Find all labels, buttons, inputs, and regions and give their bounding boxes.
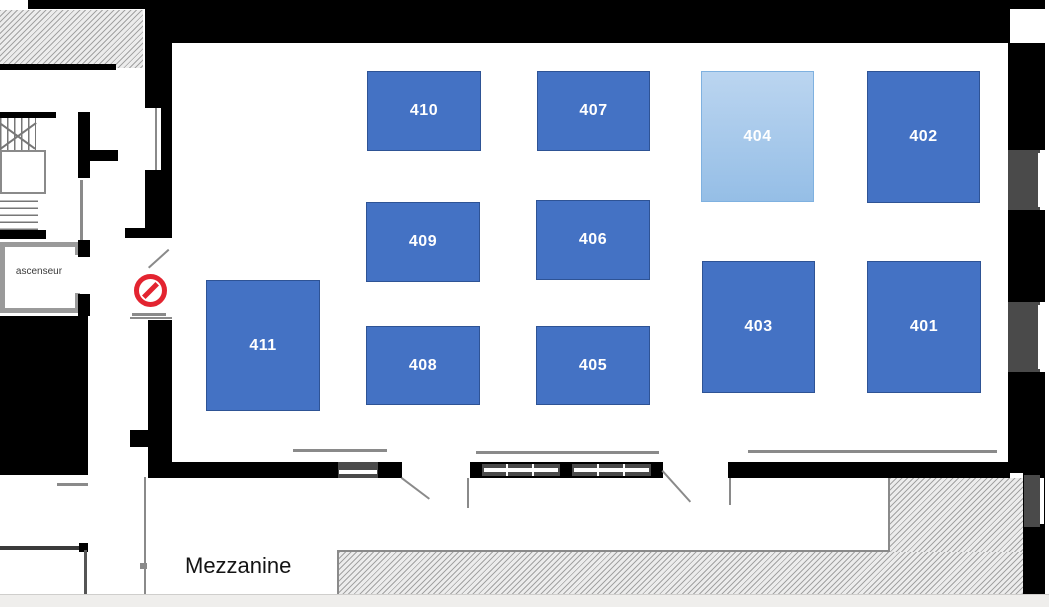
mezzanine-left-guide: [144, 477, 146, 595]
bottom-wall-pier: [378, 462, 402, 478]
elevator-side-wall: [78, 294, 90, 316]
lower-left-wall-line: [0, 546, 86, 550]
room-408[interactable]: 408: [366, 326, 480, 405]
elevator-label: ascenseur: [2, 266, 76, 277]
stair-steps-lower: [0, 196, 38, 230]
room-410[interactable]: 410: [367, 71, 481, 151]
stair-door-jamb: [80, 180, 83, 240]
bottom-wall-left: [148, 462, 338, 478]
bottom-door-swing-1: [401, 477, 430, 500]
mezzanine-void-hatch-upper: [888, 478, 1023, 552]
bottom-window-0-glass: [339, 470, 377, 474]
left-wall-lower: [148, 320, 172, 477]
room-label: 402: [909, 128, 937, 146]
hatch-bottom-bar: [0, 64, 116, 70]
left-wall-window-jamb: [155, 108, 157, 170]
right-window-2-glass: [1038, 305, 1042, 369]
room-411[interactable]: 411: [206, 280, 320, 411]
block-edge-line: [57, 483, 88, 486]
room-label: 410: [410, 102, 438, 120]
right-wall-segment: [1008, 210, 1045, 302]
right-window-3-glass: [1040, 478, 1044, 524]
floor-plan: ascenseur Mezzanine 41040740440240940641…: [0, 0, 1049, 607]
bottom-window-1-mullion: [532, 464, 534, 476]
stair-partition-stub: [90, 150, 118, 161]
room-label: 401: [910, 318, 938, 336]
right-window-2: [1008, 302, 1040, 372]
left-wall-stub-lower: [130, 430, 148, 447]
right-window-1: [1008, 150, 1040, 210]
interior-guide-line: [293, 449, 387, 452]
right-wall-segment: [1008, 372, 1045, 473]
room-401[interactable]: 401: [867, 261, 981, 393]
room-404[interactable]: 404: [701, 71, 814, 202]
room-label: 404: [743, 128, 771, 146]
elevator-room: [0, 242, 80, 313]
right-window-3: [1024, 475, 1040, 527]
room-403[interactable]: 403: [702, 261, 815, 393]
right-wall-segment: [1008, 43, 1045, 150]
mezzanine-void-hatch-lower: [337, 550, 1023, 595]
room-409[interactable]: 409: [366, 202, 480, 282]
bottom-window-1-mullion: [506, 464, 508, 476]
room-label: 403: [744, 318, 772, 336]
room-label: 411: [249, 337, 276, 355]
bottom-door-jamb-1: [467, 478, 469, 508]
right-window-1-glass: [1038, 153, 1042, 207]
lower-left-wall-vert: [84, 550, 87, 595]
mezzanine-left-notch: [140, 563, 147, 569]
left-door-swing-line: [148, 249, 169, 269]
stair-partition-wall: [78, 112, 90, 178]
left-door-threshold-line: [132, 313, 166, 316]
hatched-area-top-left: [0, 10, 143, 68]
room-407[interactable]: 407: [537, 71, 650, 151]
stair-bottom-bar: [0, 230, 46, 239]
top-wall: [145, 9, 1010, 43]
room-label: 407: [579, 102, 607, 120]
bottom-wall-right: [728, 462, 1010, 478]
bottom-strip: [0, 594, 1049, 607]
room-label: 405: [579, 357, 607, 375]
room-label: 409: [409, 233, 437, 251]
bottom-window-2-glass: [574, 468, 649, 472]
top-thin-wall: [28, 0, 1045, 9]
left-wall-stub-upper: [125, 228, 145, 238]
solid-wall-block: [0, 316, 88, 475]
interior-guide-line: [748, 450, 997, 453]
left-wall-lower-top-line: [130, 317, 172, 319]
room-402[interactable]: 402: [867, 71, 980, 203]
room-406[interactable]: 406: [536, 200, 650, 280]
bottom-door-swing-2: [662, 470, 692, 503]
room-label: 406: [579, 231, 607, 249]
no-entry-icon[interactable]: [134, 274, 167, 307]
interior-guide-line: [476, 451, 659, 454]
no-entry-bar: [142, 282, 159, 299]
room-405[interactable]: 405: [536, 326, 650, 405]
bottom-window-1-glass: [484, 468, 558, 472]
elevator-side-wall: [78, 240, 90, 257]
left-wall-window-gap: [145, 108, 161, 170]
bottom-window-2-mullion: [597, 464, 599, 476]
room-label: 408: [409, 357, 437, 375]
mezzanine-label: Mezzanine: [185, 553, 335, 579]
stair-landing: [0, 150, 46, 194]
bottom-window-2-mullion: [623, 464, 625, 476]
